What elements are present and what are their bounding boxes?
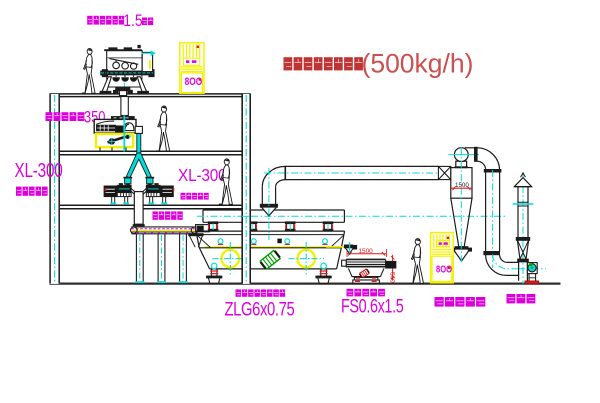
svg-text:ZLG6x0.75: ZLG6x0.75 <box>225 297 295 320</box>
svg-text:1.5: 1.5 <box>123 12 142 31</box>
svg-text:1500: 1500 <box>359 248 374 255</box>
svg-text:XL-300: XL-300 <box>178 166 227 185</box>
svg-text:FS0.6x1.5: FS0.6x1.5 <box>341 296 403 317</box>
svg-text:540: 540 <box>388 272 395 283</box>
svg-text:1500: 1500 <box>455 182 469 189</box>
svg-text:XL-300: XL-300 <box>15 159 63 182</box>
svg-text:8OO: 8OO <box>436 264 452 275</box>
svg-text:(500kg/h): (500kg/h) <box>362 49 474 79</box>
svg-text:8OO: 8OO <box>185 76 203 88</box>
